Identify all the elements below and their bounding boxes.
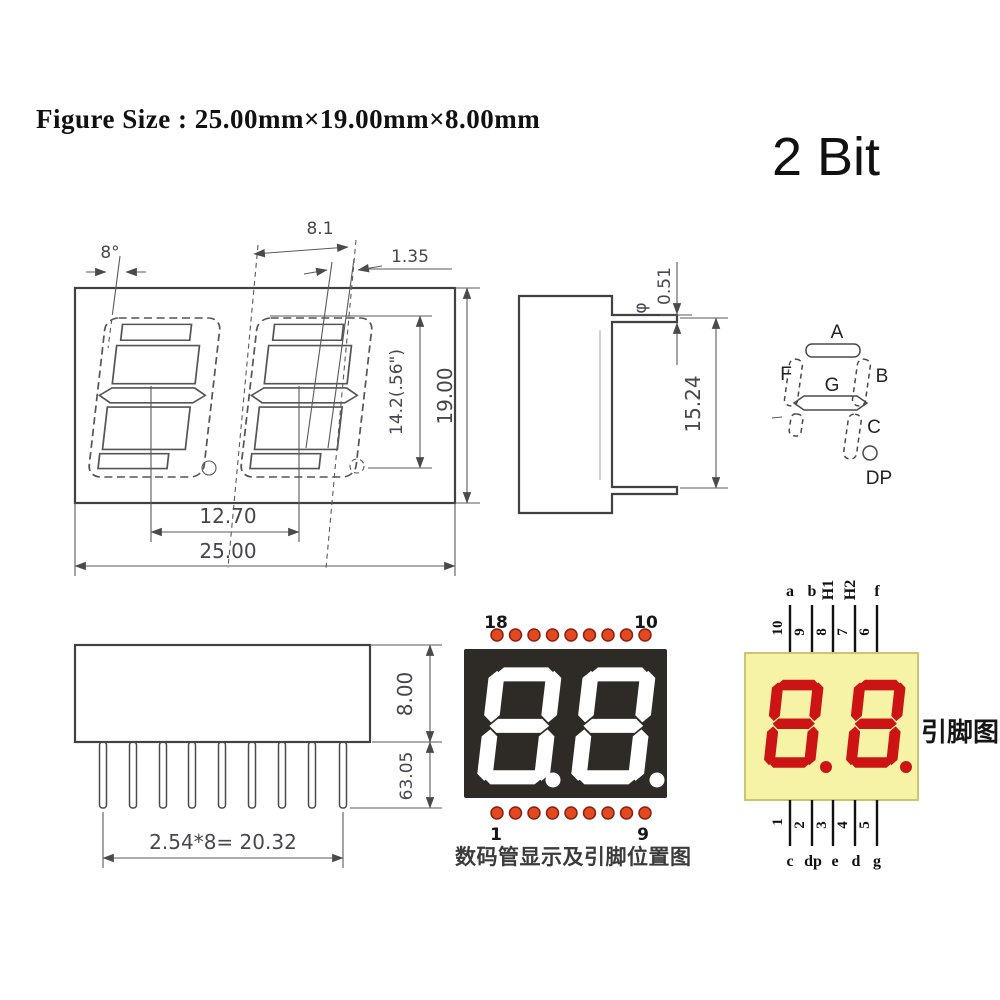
- dim-8-00: 8.00: [393, 672, 417, 717]
- pin-number-8: 8: [814, 628, 830, 636]
- datasheet-page: Figure Size : 25.00mm×19.00mm×8.00mm 2 B…: [0, 0, 1000, 1000]
- pin-label-d: d: [852, 853, 861, 870]
- pin-shape: [219, 742, 226, 808]
- ext-line: [306, 262, 332, 448]
- bottom-body-outline: [75, 645, 370, 742]
- side-view-drawing: φ 0.51 15.24: [500, 230, 740, 530]
- photo-dp-1: [546, 773, 561, 788]
- dim-0-51: 0.51: [655, 267, 675, 305]
- dim-15-24: 15.24: [681, 375, 705, 432]
- pinout-caption: 引脚图: [921, 712, 999, 749]
- dim-19-00: 19.00: [433, 367, 457, 424]
- pin-label-h2: H2: [842, 580, 859, 600]
- pin-dots-bottom: [491, 807, 651, 819]
- pin-label-h1: H1: [820, 580, 837, 600]
- ext-line: [326, 240, 356, 568]
- dim-12-70: 12.70: [199, 504, 256, 528]
- segment-label-dp: DP: [866, 468, 892, 489]
- photo-dp-2: [650, 773, 665, 788]
- dim-phi: φ: [631, 302, 651, 313]
- dim-14-2: 14.2(.56"): [387, 349, 407, 435]
- dim-angle: 8°: [100, 243, 119, 263]
- cutoff-tick: [772, 417, 782, 418]
- segment-c-shape: [843, 413, 862, 459]
- pin-label-e: e: [831, 853, 838, 870]
- segment-e-stub: [789, 413, 804, 436]
- segment-label-c: C: [867, 417, 881, 438]
- front-view-drawing: 8.1 1.35 8° 14.2(.56") 19.00 12.70 25.00: [0, 190, 500, 590]
- segment-a-shape: [806, 344, 860, 357]
- dim-pin-length: 63.05: [397, 752, 417, 801]
- pin-label-c: c: [786, 853, 793, 870]
- pin-shape: [160, 742, 167, 808]
- segment-label-f: F: [780, 364, 792, 385]
- pin-number-7: 7: [835, 628, 851, 636]
- pin-shape: [249, 742, 256, 808]
- pin-label-a: a: [786, 583, 794, 600]
- segment-dp-shape: [863, 446, 877, 460]
- page-title: Figure Size : 25.00mm×19.00mm×8.00mm: [36, 104, 540, 135]
- slant-line-ext: [108, 310, 113, 348]
- pin-number-5: 5: [857, 821, 873, 829]
- diagram-dp-2: [900, 761, 912, 773]
- pin-label-f: f: [874, 583, 880, 600]
- dim-arrow: [304, 270, 327, 274]
- bottom-pins: [100, 742, 347, 808]
- front-digit-2: [240, 318, 373, 477]
- segment-label-a: A: [831, 322, 844, 343]
- pin-number-2: 2: [792, 821, 808, 829]
- pin-shape: [130, 742, 137, 808]
- front-dp-2: [350, 459, 364, 473]
- dim-line-8-1: [254, 247, 348, 254]
- photo-caption: 数码管显示及引脚位置图: [455, 841, 715, 871]
- side-body-outline: [519, 296, 677, 513]
- front-digit-1: [88, 318, 221, 477]
- pin-number-10: 10: [770, 621, 786, 636]
- pin-shape: [279, 742, 286, 808]
- pin-label-b: b: [808, 583, 817, 600]
- segment-label-b: B: [876, 366, 889, 387]
- dim-1-35: 1.35: [391, 247, 429, 267]
- pin-number-4: 4: [835, 821, 851, 829]
- dim-8-1: 8.1: [306, 219, 333, 239]
- digit-count-label: 2 Bit: [772, 126, 880, 188]
- pin-number-3: 3: [814, 821, 830, 829]
- bottom-view-drawing: 8.00 63.05 2.54*8= 20.32: [50, 620, 470, 880]
- dim-25-00: 25.00: [199, 539, 256, 563]
- pin-number-6: 6: [857, 628, 873, 636]
- pin-shape: [340, 742, 347, 808]
- pin-shape: [100, 742, 107, 808]
- segment-g-shape: [794, 396, 867, 410]
- pin-label-g: g: [873, 853, 881, 870]
- pin-number-1: 1: [770, 818, 786, 826]
- segment-label-g: G: [825, 375, 840, 396]
- pin-shape: [189, 742, 196, 808]
- pin-shape: [309, 742, 316, 808]
- slant-line: [113, 256, 120, 310]
- diagram-dp-1: [820, 761, 832, 773]
- pin-label-dp: dp: [804, 853, 822, 870]
- pin-dots-top: [491, 629, 651, 641]
- dim-pitch: 2.54*8= 20.32: [149, 830, 297, 854]
- segment-map-diagram: A F B G C DP: [760, 300, 1000, 510]
- pin-number-9: 9: [792, 628, 808, 636]
